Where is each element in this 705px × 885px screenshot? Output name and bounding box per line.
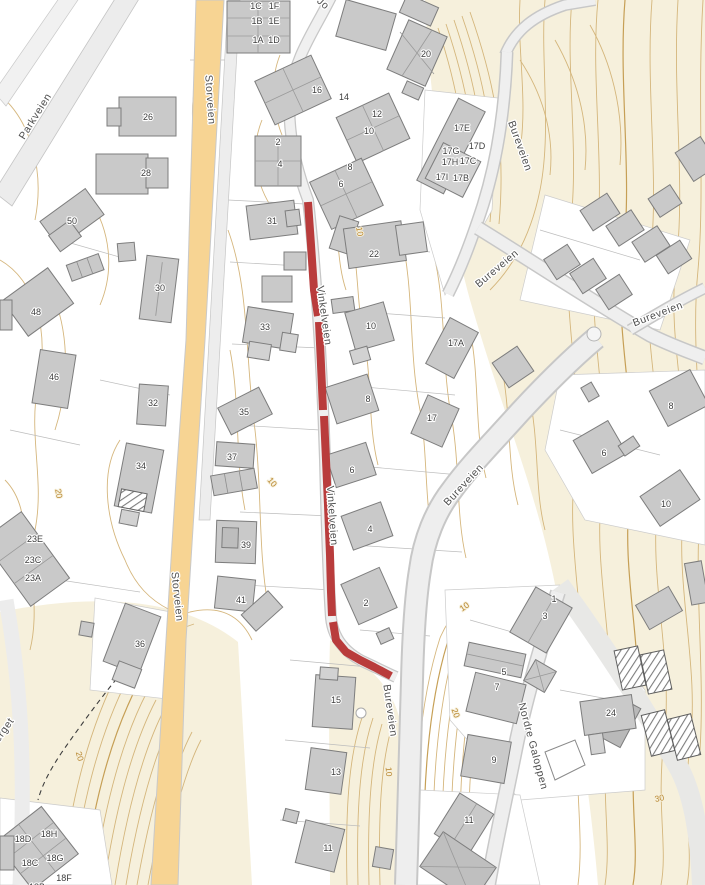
buildings-layer bbox=[284, 252, 306, 270]
buildings-layer bbox=[395, 222, 427, 256]
building-number-label: 50 bbox=[67, 216, 77, 226]
building-number-label: 17C bbox=[460, 156, 477, 166]
building-number-label: 8 bbox=[347, 162, 352, 172]
building-number-label: 11 bbox=[464, 815, 473, 825]
map-svg[interactable]: ParkveienStorveienStorveienJoBureveienBu… bbox=[0, 0, 705, 885]
buildings-layer bbox=[0, 836, 14, 870]
building-number-label: 17D bbox=[469, 141, 486, 151]
buildings-layer bbox=[372, 847, 393, 870]
building-number-label: 35 bbox=[239, 407, 249, 417]
buildings-layer bbox=[214, 576, 255, 612]
building-number-label: 18H bbox=[41, 829, 58, 839]
building-number-label: 33 bbox=[260, 322, 270, 332]
buildings-layer bbox=[589, 733, 606, 755]
buildings-layer bbox=[320, 667, 339, 680]
buildings-layer bbox=[356, 708, 366, 718]
building-number-label: 17G bbox=[442, 146, 459, 156]
building-number-label: 17I bbox=[436, 172, 449, 182]
building-number-label: 1 bbox=[551, 594, 556, 604]
building-number-label: 17A bbox=[448, 338, 464, 348]
buildings-layer bbox=[222, 528, 239, 549]
building-number-label: 30 bbox=[155, 283, 165, 293]
building-number-label: 6 bbox=[601, 448, 606, 458]
building-number-label: 24 bbox=[606, 708, 616, 718]
contour-elevation-label: 20 bbox=[53, 488, 65, 499]
building-number-label: 1F bbox=[269, 1, 280, 11]
building-number-label: 36 bbox=[135, 639, 145, 649]
building-number-label: 4 bbox=[277, 159, 282, 169]
map-canvas[interactable]: ParkveienStorveienStorveienJoBureveienBu… bbox=[0, 0, 705, 885]
buildings-layer bbox=[285, 209, 301, 227]
building-number-label: 23C bbox=[25, 555, 42, 565]
building-number-label: 41 bbox=[236, 595, 246, 605]
building-number-label: 7 bbox=[494, 682, 499, 692]
building-number-label: 10 bbox=[366, 321, 376, 331]
building-number-label: 39 bbox=[241, 540, 251, 550]
building-number-label: 1A bbox=[252, 35, 263, 45]
building-number-label: 28 bbox=[141, 168, 151, 178]
building-number-label: 6 bbox=[338, 179, 343, 189]
building-number-label: 18C bbox=[22, 858, 39, 868]
building-number-label: 17B bbox=[453, 173, 469, 183]
building-number-label: 18D bbox=[15, 834, 32, 844]
building-number-label: 22 bbox=[369, 249, 379, 259]
building-number-label: 4 bbox=[367, 524, 372, 534]
building-number-label: 18G bbox=[46, 853, 63, 863]
contour-elevation-label: 10 bbox=[354, 226, 366, 237]
building-number-label: 15 bbox=[331, 695, 341, 705]
building-number-label: 1E bbox=[268, 16, 279, 26]
building-number-label: 8 bbox=[668, 401, 673, 411]
buildings-layer bbox=[117, 242, 136, 261]
building-number-label: 5 bbox=[501, 667, 506, 677]
buildings-layer bbox=[247, 341, 271, 360]
building-number-label: 34 bbox=[136, 461, 146, 471]
building-number-label: 10 bbox=[661, 499, 671, 509]
building-number-label: 20 bbox=[421, 49, 431, 59]
building-number-label: 10 bbox=[364, 126, 374, 136]
buildings-layer bbox=[461, 734, 512, 783]
buildings-layer bbox=[119, 509, 139, 526]
building-number-label: 37 bbox=[227, 452, 237, 462]
bureveien-road bbox=[587, 327, 601, 341]
building-number-label: 8 bbox=[365, 394, 370, 404]
building-number-label: 1B bbox=[251, 16, 262, 26]
building-number-label: 18F bbox=[56, 873, 72, 883]
building-number-label: 46 bbox=[49, 372, 59, 382]
building-number-label: 16 bbox=[312, 85, 322, 95]
buildings-layer bbox=[0, 300, 12, 330]
contour-elevation-label: 10 bbox=[384, 767, 395, 778]
buildings-layer bbox=[280, 332, 299, 352]
building-number-label: 6 bbox=[349, 465, 354, 475]
building-number-label: 13 bbox=[331, 767, 341, 777]
building-number-label: 9 bbox=[491, 755, 496, 765]
building-number-label: 11 bbox=[323, 843, 332, 853]
building-number-label: 14 bbox=[339, 92, 349, 102]
building-number-label: 23E bbox=[27, 534, 43, 544]
buildings-layer bbox=[107, 108, 121, 126]
building-number-label: 1D bbox=[268, 35, 280, 45]
buildings-layer bbox=[262, 276, 292, 302]
building-number-label: 17 bbox=[427, 413, 437, 423]
building-number-label: 31 bbox=[267, 216, 277, 226]
building-number-label: 17E bbox=[454, 123, 470, 133]
building-number-label: 17H bbox=[442, 157, 459, 167]
building-number-label: 12 bbox=[372, 109, 382, 119]
building-number-label: 23A bbox=[25, 573, 41, 583]
building-number-label: 26 bbox=[143, 112, 153, 122]
building-number-label: 2 bbox=[363, 598, 368, 608]
building-number-label: 3 bbox=[542, 611, 547, 621]
building-number-label: 48 bbox=[31, 307, 41, 317]
buildings-layer bbox=[79, 621, 94, 637]
building-number-label: 1C bbox=[250, 1, 262, 11]
building-number-label: 2 bbox=[275, 137, 280, 147]
building-number-label: 32 bbox=[148, 398, 158, 408]
